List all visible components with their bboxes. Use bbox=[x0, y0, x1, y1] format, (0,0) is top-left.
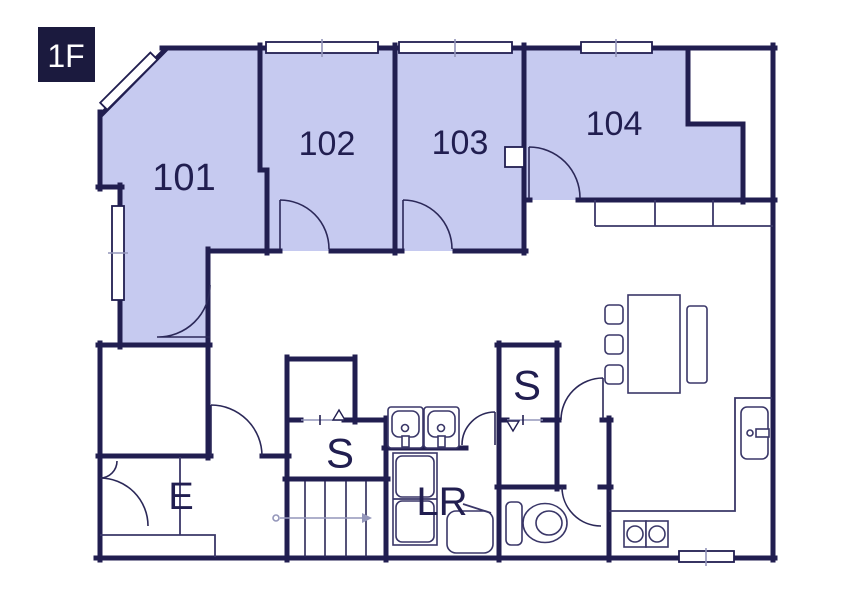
washbasin-1-faucet bbox=[402, 436, 409, 447]
burner-ring-left bbox=[627, 526, 643, 542]
storage-center-label: S bbox=[326, 430, 354, 477]
toilet-tank bbox=[506, 502, 522, 545]
toilet-seat bbox=[536, 511, 562, 535]
entrance-label: E bbox=[168, 476, 193, 518]
burner-ring-right bbox=[649, 526, 665, 542]
door-entrance-main bbox=[100, 478, 148, 526]
washbasins bbox=[388, 407, 459, 448]
door-room-b bbox=[561, 378, 603, 420]
floor-badge-label: 1F bbox=[47, 38, 84, 74]
room-101-label: 101 bbox=[152, 157, 215, 199]
room-104-label: 104 bbox=[586, 105, 643, 143]
washbasin-2-faucet bbox=[438, 436, 445, 447]
storage-right-label: S bbox=[513, 362, 541, 409]
toilet-fixture bbox=[506, 502, 567, 545]
dining-bench bbox=[687, 306, 707, 383]
dining-chair-1 bbox=[605, 305, 623, 324]
stair-treads bbox=[305, 481, 366, 557]
cabinet-row bbox=[595, 200, 773, 226]
kitchen-faucet-knob bbox=[747, 430, 753, 436]
stair-arrow-head bbox=[362, 513, 372, 523]
dining-chair-3 bbox=[605, 365, 623, 384]
stair-arrow-start bbox=[273, 515, 279, 521]
entrance-step bbox=[100, 535, 215, 557]
door-corridor bbox=[211, 405, 262, 456]
washbasin-1-drain bbox=[402, 425, 409, 432]
kitchen-fixtures bbox=[624, 407, 769, 547]
door-swing-marker-up bbox=[333, 410, 345, 420]
floor-plan-page: 1F 101 102 103 104 S S E LR bbox=[0, 0, 843, 596]
door-swing-marker-down bbox=[507, 421, 519, 431]
room-103-label: 103 bbox=[432, 124, 489, 162]
floor-badge: 1F bbox=[38, 27, 95, 82]
dining-table bbox=[628, 295, 680, 393]
door-toilet bbox=[562, 487, 601, 526]
door-washroom bbox=[462, 412, 495, 445]
kitchen-faucet-handle bbox=[756, 429, 769, 437]
floor-plan-drawing: 1F 101 102 103 104 S S E LR bbox=[0, 0, 843, 596]
dining-set bbox=[605, 295, 707, 393]
laundry-room-label: LR bbox=[416, 480, 467, 524]
wall-niche bbox=[505, 147, 524, 167]
washbasin-2-drain bbox=[438, 425, 445, 432]
door-entrance-child bbox=[100, 461, 117, 478]
room-102-label: 102 bbox=[299, 125, 356, 163]
dining-chair-2 bbox=[605, 335, 623, 354]
